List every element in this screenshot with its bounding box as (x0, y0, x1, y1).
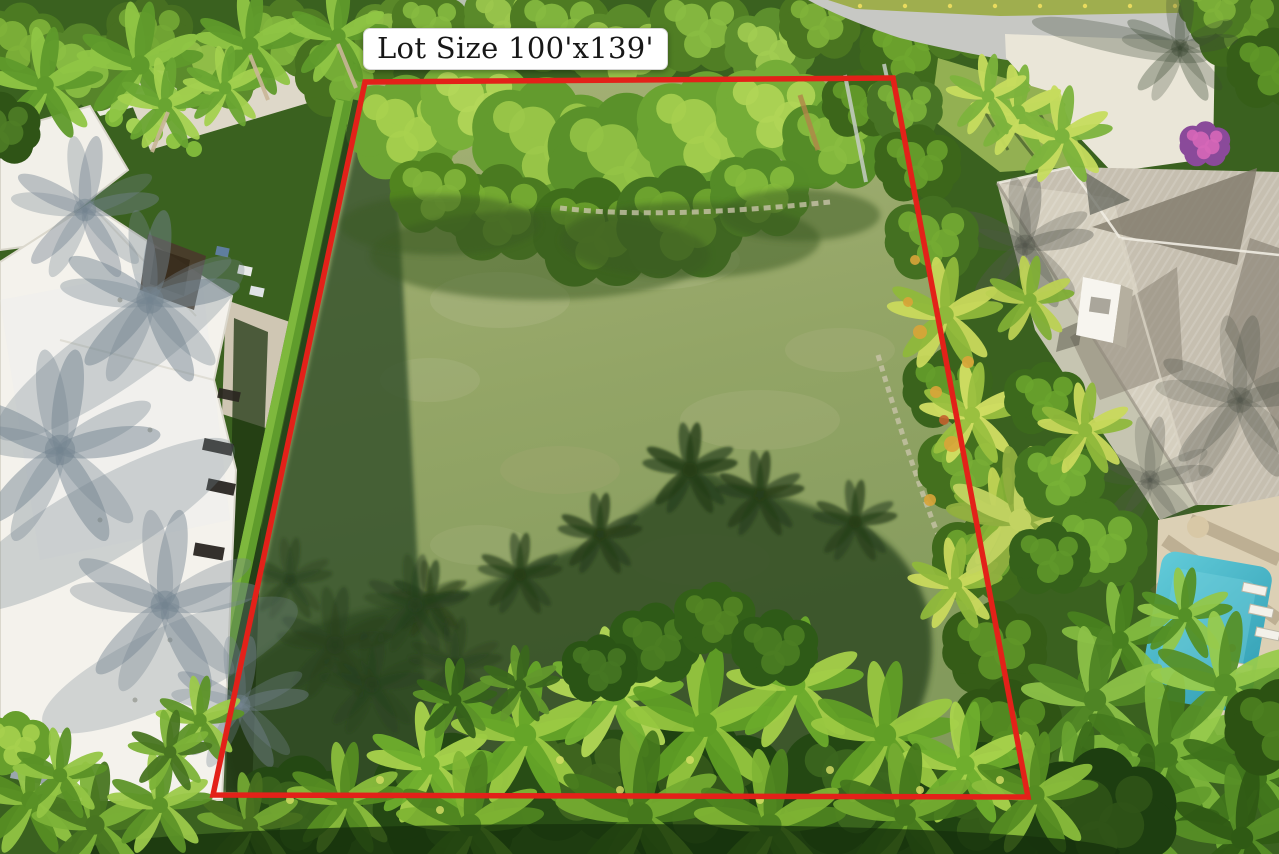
lot-size-label: Lot Size 100'x139' (363, 28, 668, 70)
aerial-photo: Lot Size 100'x139' (0, 0, 1279, 854)
aerial-scene (0, 0, 1279, 854)
patio-umbrella (1187, 516, 1209, 538)
